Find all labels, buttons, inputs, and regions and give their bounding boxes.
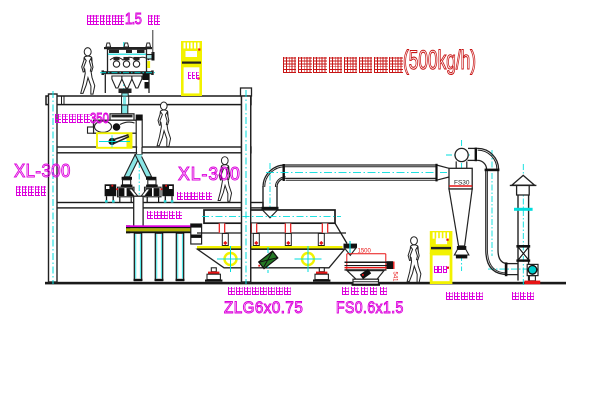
svg-text:1500: 1500	[358, 248, 372, 254]
svg-text:FS30: FS30	[454, 180, 470, 187]
svg-text:541: 541	[392, 272, 398, 283]
